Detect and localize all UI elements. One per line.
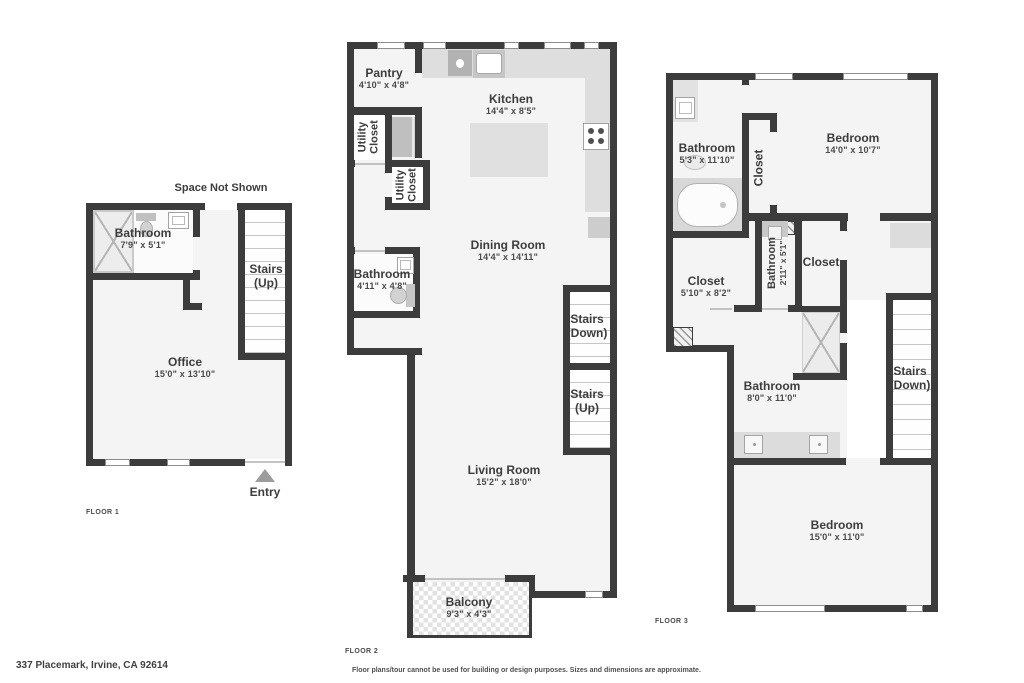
wall — [385, 115, 392, 160]
entry-arrow-icon — [255, 469, 275, 482]
room-label-bathroom: Bathroom 7'9" x 5'1" — [115, 226, 172, 251]
wall — [610, 42, 617, 598]
floor2-tag: FLOOR 2 — [345, 648, 378, 655]
wall — [407, 348, 415, 582]
wall — [238, 353, 285, 360]
tub-drain — [720, 202, 726, 208]
wall — [86, 459, 105, 466]
door-sill — [355, 250, 385, 252]
floor3-tag: FLOOR 3 — [655, 618, 688, 625]
disclaimer-text: Floor plans/tour cannot be used for buil… — [352, 667, 701, 674]
wall — [519, 42, 544, 49]
sink-icon — [744, 435, 763, 454]
refrigerator-icon — [588, 217, 610, 238]
window — [167, 459, 190, 466]
wall — [446, 42, 504, 49]
room-label-closet-left: Closet 5'10" x 8'2" — [681, 274, 731, 299]
entry-door-sill — [245, 461, 285, 463]
floor1-plan: Space Not Shown Bathroom 7'9" x 5'1" Sta… — [86, 185, 301, 537]
wall — [795, 221, 802, 305]
wall — [563, 363, 610, 370]
wall — [840, 260, 847, 333]
room-label-stairs-up: Stairs (Up) — [249, 262, 282, 291]
wall — [793, 73, 843, 80]
balcony-wall — [407, 582, 413, 638]
chase-hatch — [673, 327, 693, 347]
wall — [190, 459, 245, 466]
sink-basin — [172, 216, 185, 225]
wall — [603, 591, 617, 598]
room-label-living-room: Living Room 15'2" x 18'0" — [468, 463, 541, 488]
window — [755, 73, 793, 80]
burner — [598, 128, 604, 134]
wall — [755, 305, 762, 312]
wall — [880, 213, 931, 221]
window — [105, 459, 130, 466]
wall — [886, 293, 931, 300]
wall — [742, 73, 749, 85]
wall — [840, 221, 847, 231]
balcony-wall — [529, 582, 532, 638]
wall — [666, 73, 673, 352]
room-label-utility-closet-2: Utility Closet — [395, 162, 418, 208]
wall — [734, 305, 755, 312]
room-label-dining-room: Dining Room 14'4" x 14'11" — [471, 238, 546, 263]
burner — [598, 138, 604, 144]
room-label-kitchen: Kitchen 14'4" x 8'5" — [486, 92, 536, 117]
wall — [742, 113, 777, 120]
window — [906, 605, 923, 612]
wall — [237, 203, 292, 210]
door-sill — [762, 308, 788, 310]
room-label-pantry: Pantry 4'10" x 4'8" — [359, 66, 409, 91]
wall — [563, 285, 610, 292]
stove-icon — [583, 123, 609, 150]
wall — [347, 42, 354, 355]
sink-basin — [476, 53, 502, 74]
window — [423, 42, 446, 49]
wall — [238, 203, 245, 360]
balcony-door-sill — [425, 578, 505, 580]
bathtub-icon — [677, 183, 738, 227]
room-label-closet-upper: Closet — [753, 150, 766, 187]
wall — [571, 42, 584, 49]
floor3-plan: Bathroom 5'3" x 11'10" Closet Bedroom 14… — [663, 60, 948, 640]
room-label-bathroom-upper: Bathroom 5'3" x 11'10" — [679, 141, 736, 166]
floor2-plan: Pantry 4'10" x 4'8" Kitchen 14'4" x 8'5"… — [345, 35, 625, 667]
wall — [285, 203, 292, 466]
room-label-balcony: Balcony 9'3" x 4'3" — [446, 595, 493, 620]
faucet-dot — [753, 443, 756, 446]
wall — [347, 247, 355, 254]
wall — [727, 458, 846, 465]
kitchen-sink-unit — [473, 50, 505, 78]
room-label-bedroom-lower: Bedroom 15'0" x 11'0" — [810, 518, 865, 543]
sink-icon — [675, 97, 695, 119]
window — [843, 73, 908, 80]
wall — [666, 231, 749, 238]
wall — [727, 345, 734, 612]
burner — [588, 128, 594, 134]
wall — [415, 115, 422, 158]
room-label-utility-closet-1: Utility Closet — [357, 114, 380, 160]
wall — [86, 203, 93, 466]
window — [504, 42, 519, 49]
wall — [770, 120, 777, 132]
window — [584, 42, 599, 49]
room-label-bedroom-upper: Bedroom 14'0" x 10'7" — [825, 131, 880, 156]
room-label-stairs-down: Stairs (Down) — [890, 364, 931, 393]
wall — [788, 305, 802, 312]
wall — [825, 605, 906, 612]
window — [585, 591, 603, 598]
sink-basin — [679, 102, 692, 114]
wall — [86, 203, 205, 210]
wall — [130, 459, 167, 466]
wall — [908, 73, 931, 80]
burner — [588, 138, 594, 144]
wall — [413, 247, 420, 318]
window — [377, 42, 405, 49]
wall — [931, 73, 938, 612]
room-label-bathroom-lower: Bathroom 8'0" x 11'0" — [744, 379, 801, 404]
wall — [347, 160, 355, 167]
property-address: 337 Placemark, Irvine, CA 92614 — [16, 660, 168, 671]
droplet-icon — [456, 59, 464, 68]
wall — [923, 605, 938, 612]
space-not-shown-label: Space Not Shown — [175, 182, 268, 195]
room-label-bathroom-middle: Bathroom 2'11" x 5'1" — [767, 237, 787, 289]
wall — [563, 448, 617, 455]
stair-void — [847, 300, 886, 458]
door-sill — [710, 308, 732, 310]
wall — [793, 373, 846, 380]
wall — [747, 213, 848, 221]
wall — [86, 273, 200, 280]
room-label-bathroom: Bathroom 4'11" x 4'8" — [354, 267, 411, 292]
kitchen-island — [470, 123, 548, 177]
wall — [183, 303, 202, 310]
room-label-stairs-down: Stairs (Down) — [567, 312, 608, 341]
floor1-tag: FLOOR 1 — [86, 509, 119, 516]
dishwasher-icon — [448, 50, 472, 76]
room-label-stairs-up: Stairs (Up) — [570, 387, 603, 416]
room-label-office: Office 15'0" x 13'10" — [155, 355, 216, 380]
shelf — [890, 223, 931, 248]
wall — [385, 167, 392, 173]
wall — [403, 575, 425, 582]
room-label-closet-right: Closet — [803, 255, 840, 269]
door-sill — [355, 163, 385, 165]
wall — [193, 210, 200, 237]
wall — [528, 591, 585, 598]
sink-icon — [809, 435, 828, 454]
wall — [415, 49, 422, 73]
floor-plan-canvas: Space Not Shown Bathroom 7'9" x 5'1" Sta… — [0, 0, 1024, 683]
window — [544, 42, 571, 49]
balcony-wall — [407, 635, 532, 638]
toilet-tank-icon — [136, 213, 156, 221]
wall — [405, 42, 423, 49]
entry-label: Entry — [250, 485, 281, 499]
faucet-dot — [818, 443, 821, 446]
wall — [563, 285, 570, 455]
wall — [347, 311, 420, 318]
shower-icon — [802, 312, 840, 373]
wall — [755, 221, 762, 305]
window — [755, 605, 825, 612]
wall — [727, 605, 755, 612]
wall — [880, 458, 931, 465]
